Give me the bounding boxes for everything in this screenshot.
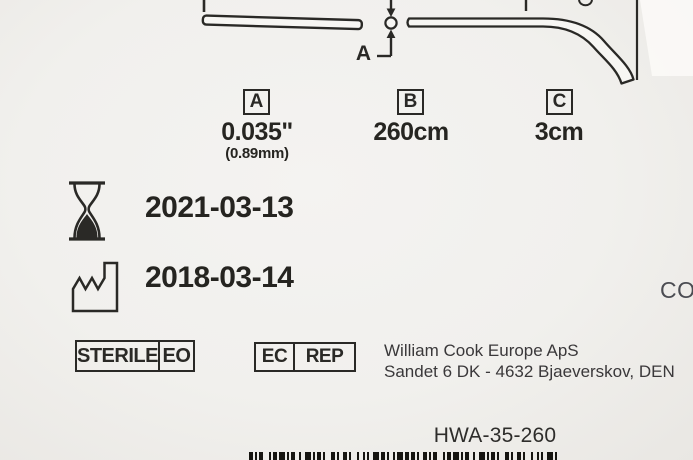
wire-body — [203, 16, 362, 30]
device-label: A A B C 0.035" (0.89mm) 260cm 3cm 2021-0… — [0, 0, 693, 460]
barcode — [249, 452, 557, 460]
sterile-method: EO — [158, 342, 193, 370]
dim-value-a: 0.035" — [202, 118, 312, 147]
manufacturer-factory-icon — [69, 257, 121, 313]
dim-value-c: 3cm — [504, 118, 614, 147]
dim-key-a: A — [243, 89, 270, 115]
expiry-date: 2021-03-13 — [145, 191, 293, 225]
ec-label: EC — [256, 344, 293, 370]
dim-key-b: B — [397, 89, 424, 115]
pointer-label-a: A — [356, 42, 371, 65]
sterile-eo-symbol: STERILE EO — [75, 340, 195, 372]
rep-label: REP — [293, 344, 354, 370]
dim-key-a-letter: A — [250, 91, 264, 113]
manufacturer-address-block: William Cook Europe ApS Sandet 6 DK - 46… — [384, 340, 693, 382]
product-reference: HWA-35-260 — [405, 424, 585, 448]
diameter-callout: A — [356, 0, 397, 65]
barcode-bar — [555, 452, 557, 460]
cropped-arc — [579, 0, 592, 5]
label-fold-highlight — [640, 0, 693, 76]
guidewire-diagram: A — [0, 0, 693, 88]
dim-key-b-letter: B — [404, 91, 418, 113]
dim-key-c-letter: C — [553, 91, 567, 113]
wire-tip-curved — [408, 19, 634, 84]
cropped-cook-logo-text: CO — [660, 277, 693, 304]
manufacturer-address-line: Sandet 6 DK - 4632 Bjaeverskov, DEN — [384, 361, 693, 382]
manufacture-date: 2018-03-14 — [145, 261, 293, 295]
sterile-label: STERILE — [77, 342, 158, 370]
manufacturer-name: William Cook Europe ApS — [384, 340, 693, 361]
dim-value-b: 260cm — [356, 118, 466, 147]
ec-rep-symbol: EC REP — [254, 342, 356, 372]
dim-key-c: C — [546, 89, 573, 115]
use-by-hourglass-icon — [66, 180, 108, 242]
dim-value-a-metric: (0.89mm) — [202, 145, 312, 162]
